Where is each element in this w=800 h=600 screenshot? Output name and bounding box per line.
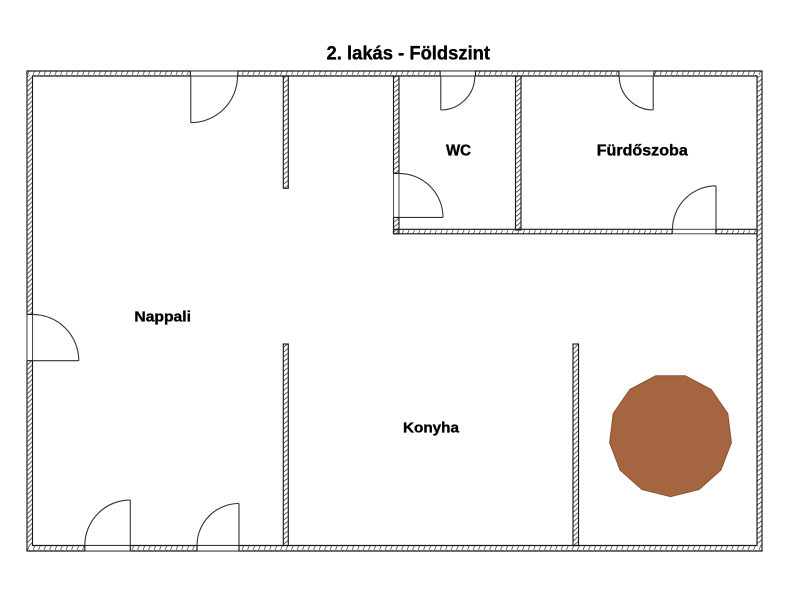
svg-text:2. lakás - Földszint: 2. lakás - Földszint — [327, 42, 491, 64]
svg-text:Fürdőszoba: Fürdőszoba — [597, 143, 688, 160]
svg-text:Nappali: Nappali — [134, 308, 191, 325]
svg-text:WC: WC — [446, 143, 471, 160]
svg-text:Konyha: Konyha — [403, 419, 460, 436]
